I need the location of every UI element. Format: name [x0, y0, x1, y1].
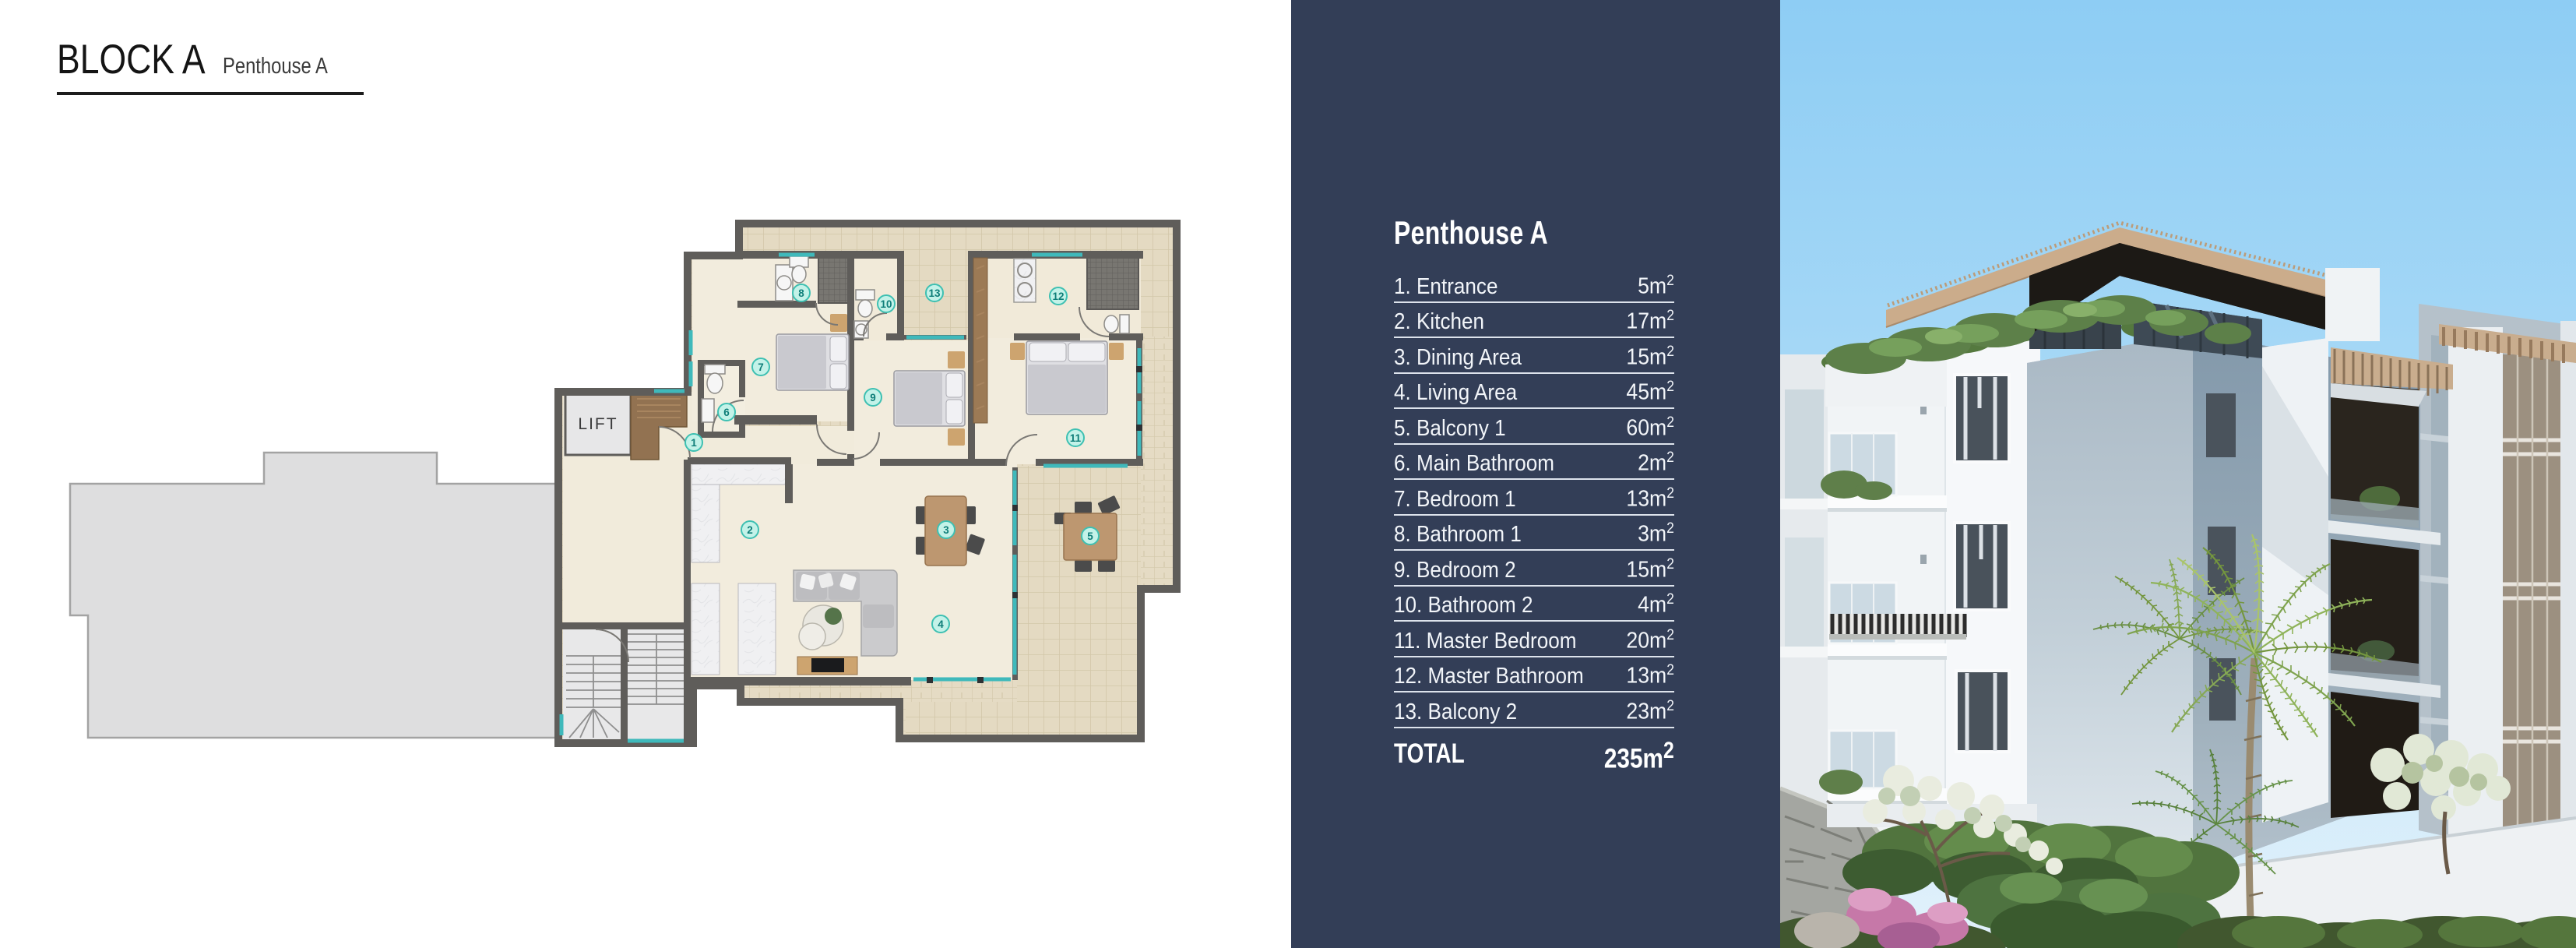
svg-text:11: 11: [1070, 432, 1082, 444]
svg-text:10: 10: [880, 298, 892, 310]
svg-text:8: 8: [798, 287, 804, 299]
svg-text:13: 13: [928, 287, 941, 299]
svg-text:2: 2: [747, 524, 753, 536]
svg-text:12: 12: [1052, 291, 1064, 302]
svg-text:4: 4: [938, 618, 944, 630]
svg-text:6: 6: [723, 407, 730, 418]
svg-text:5: 5: [1087, 530, 1093, 542]
svg-text:3: 3: [943, 524, 949, 536]
svg-text:7: 7: [758, 361, 764, 373]
svg-text:LIFT: LIFT: [578, 415, 618, 433]
svg-text:9: 9: [870, 392, 876, 404]
svg-text:1: 1: [691, 437, 697, 449]
